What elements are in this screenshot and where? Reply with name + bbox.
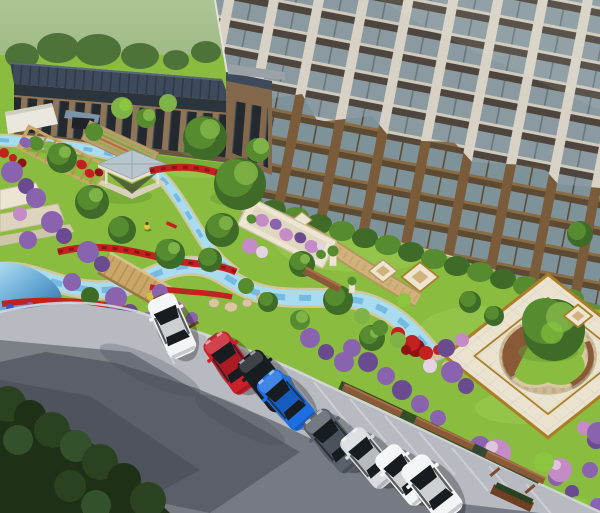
rendering-canvas (0, 0, 600, 513)
topiary-pedestal-2 (348, 277, 357, 294)
landscape-rendering (0, 0, 600, 513)
